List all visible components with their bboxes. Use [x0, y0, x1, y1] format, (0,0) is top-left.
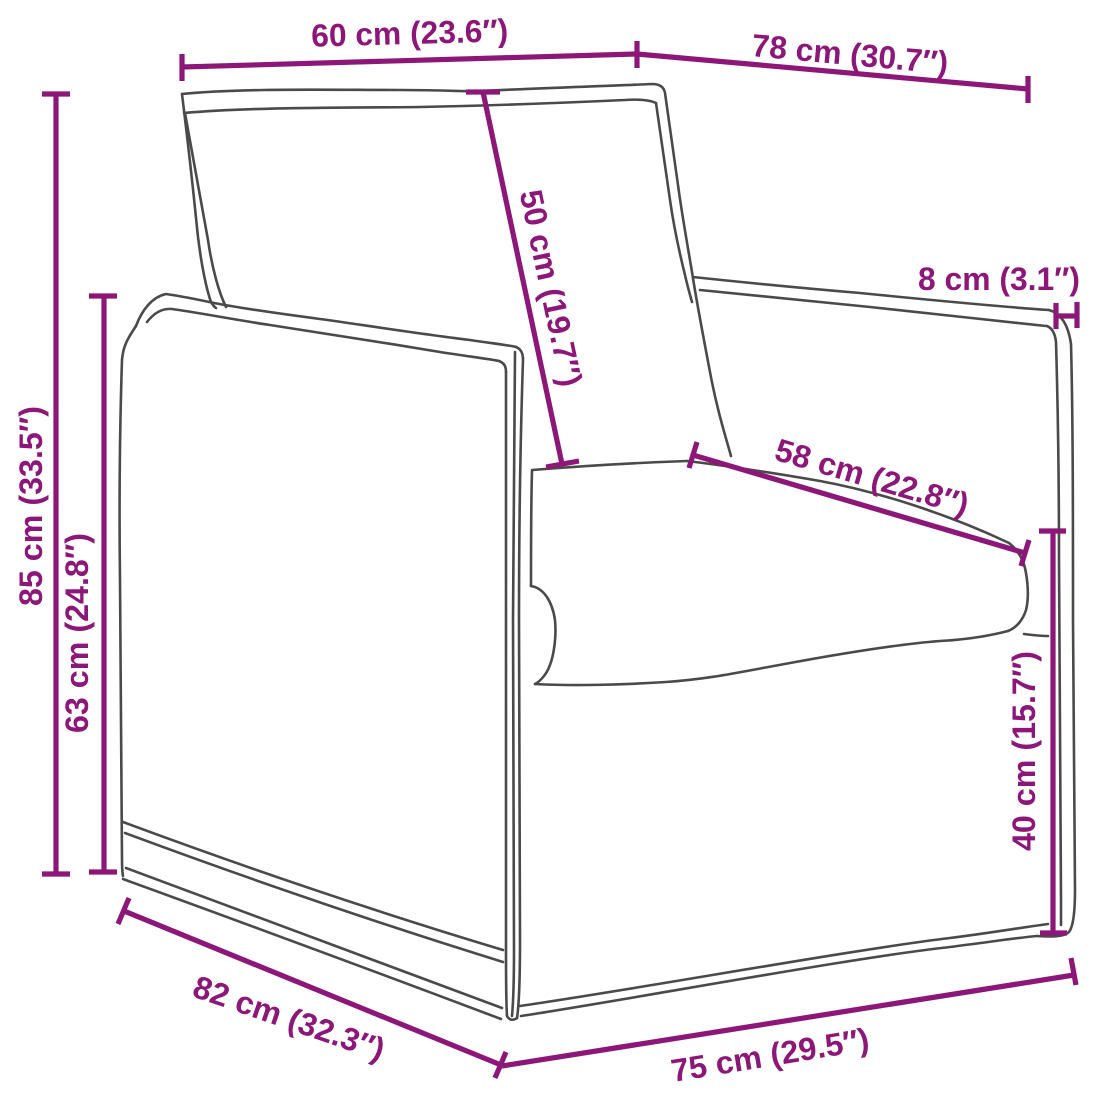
- svg-text:8 cm (3.1″): 8 cm (3.1″): [918, 261, 1080, 297]
- svg-text:63 cm (24.8″): 63 cm (24.8″): [59, 533, 95, 733]
- svg-text:60 cm (23.6″): 60 cm (23.6″): [311, 12, 509, 53]
- svg-text:40 cm (15.7″): 40 cm (15.7″): [1006, 651, 1042, 851]
- svg-text:85 cm (33.5″): 85 cm (33.5″): [13, 406, 49, 606]
